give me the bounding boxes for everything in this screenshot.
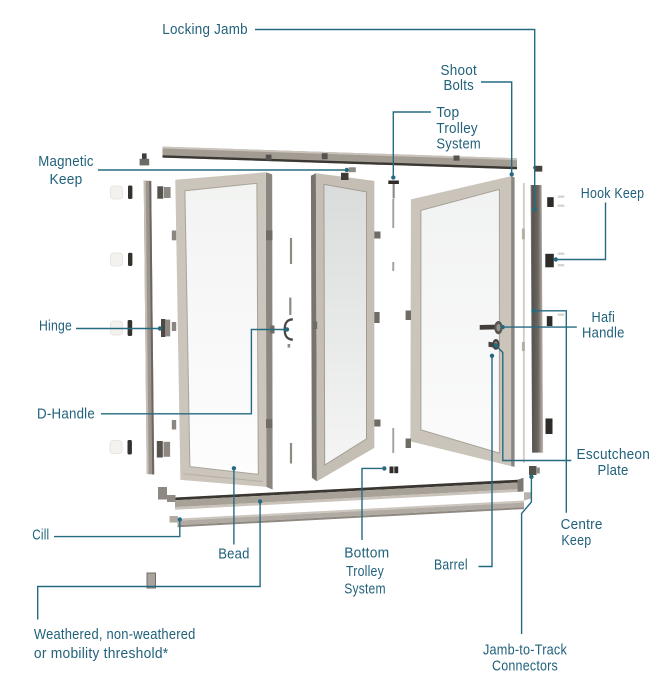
svg-text:Cill: Cill [32,528,49,544]
svg-text:Locking Jamb: Locking Jamb [162,22,248,38]
svg-text:System: System [436,137,481,153]
svg-text:Bottom: Bottom [344,545,389,561]
svg-text:System: System [344,582,386,598]
svg-text:Jamb-to-Track: Jamb-to-Track [483,643,567,659]
svg-text:Hinge: Hinge [39,318,72,334]
svg-text:Weathered, non-weathered: Weathered, non-weathered [34,627,196,643]
svg-text:Trolley: Trolley [346,564,384,580]
svg-text:Centre: Centre [561,517,603,533]
svg-text:Keep: Keep [561,533,591,549]
svg-text:Handle: Handle [582,326,625,342]
svg-text:Connectors: Connectors [492,658,558,674]
svg-text:Hook Keep: Hook Keep [581,186,644,202]
svg-text:Plate: Plate [598,463,629,479]
svg-text:Keep: Keep [50,172,83,188]
svg-text:Hafi: Hafi [592,310,616,326]
svg-text:Top: Top [436,105,459,121]
svg-text:Bolts: Bolts [443,78,474,94]
svg-text:Barrel: Barrel [434,557,468,573]
svg-text:Escutcheon: Escutcheon [577,447,651,463]
svg-text:Magnetic: Magnetic [38,154,94,170]
svg-text:D-Handle: D-Handle [37,406,95,422]
svg-text:Trolley: Trolley [436,121,478,137]
svg-text:Bead: Bead [218,546,250,562]
svg-text:or mobility threshold*: or mobility threshold* [34,646,169,662]
svg-text:Shoot: Shoot [440,63,477,79]
